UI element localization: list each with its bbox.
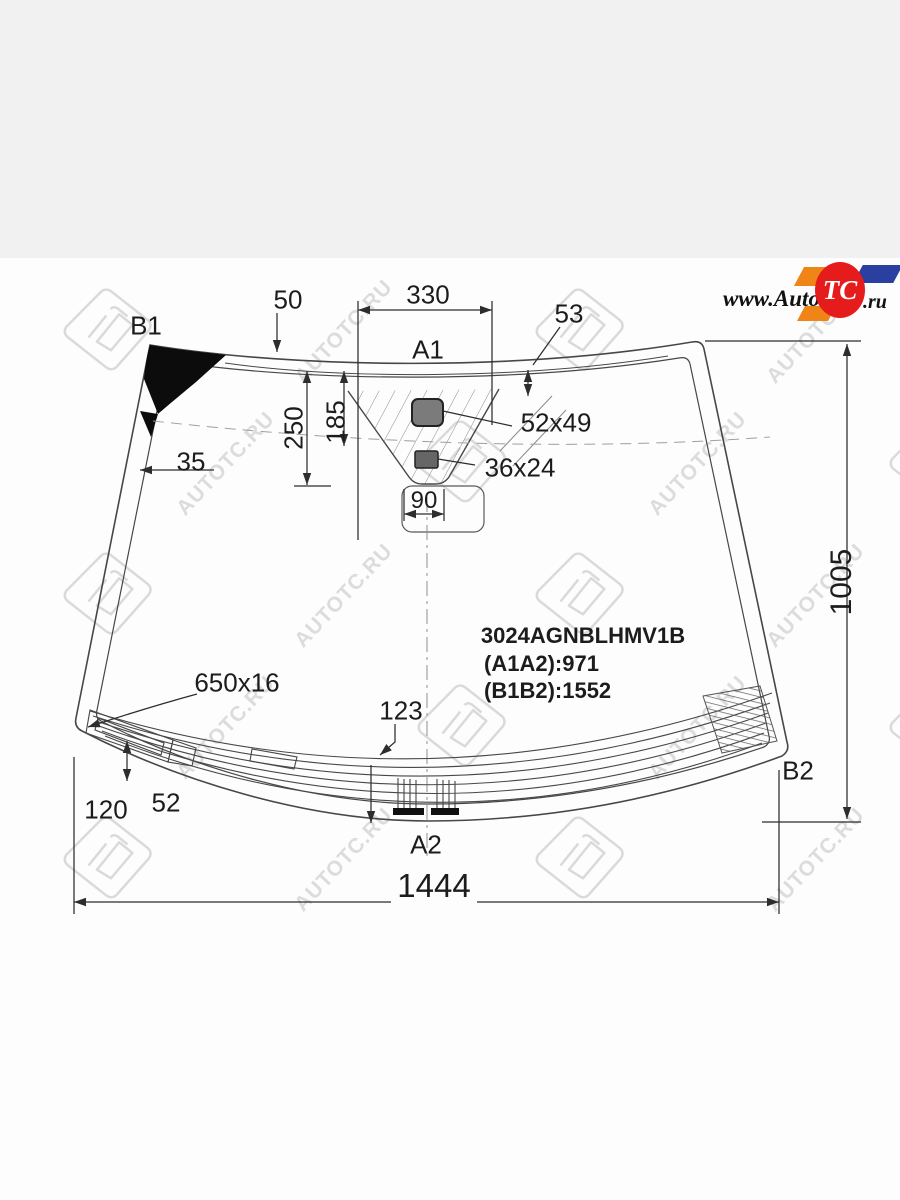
dim-b1b2: (B1B2):1552 [484, 678, 611, 704]
logo-tc-text: TC [823, 275, 858, 306]
sensor-large [412, 399, 443, 426]
dim-sensor-small: 36x24 [485, 453, 556, 484]
heater-terminal-left [393, 808, 424, 815]
windshield-diagram [0, 0, 900, 1200]
dim-123: 123 [379, 696, 422, 727]
dim-1444: 1444 [397, 867, 470, 905]
dim-heater: 650x16 [194, 668, 279, 699]
dim-sensor-large: 52x49 [521, 408, 592, 439]
part-number: 3024AGNBLHMV1B [481, 623, 685, 649]
screenshot-root: AUTOTC.RUAUTOTC.RUAUTOTC.RUAUTOTC.RUAUTO… [0, 0, 900, 1200]
dim-185: 185 [321, 400, 352, 443]
dim-250: 250 [279, 406, 310, 449]
logo-red-circle: TC [815, 262, 865, 318]
dim-1005: 1005 [825, 549, 859, 616]
dim-330: 330 [406, 280, 449, 311]
label-a1: A1 [412, 335, 444, 366]
dim-35: 35 [177, 447, 206, 478]
dim-120: 120 [84, 795, 127, 826]
dim-a1a2: (A1A2):971 [484, 651, 599, 677]
label-b2: B2 [782, 756, 814, 787]
dim-50: 50 [274, 285, 303, 316]
logo-text-left: www.Auto [723, 286, 820, 312]
dim-53: 53 [555, 299, 584, 330]
dim-90: 90 [411, 487, 438, 515]
black-corner-band [140, 345, 226, 437]
label-a2: A2 [410, 830, 442, 861]
logo-text-right: .ru [863, 291, 887, 314]
site-logo[interactable]: www.Auto TC .ru [715, 255, 900, 335]
sensor-small [415, 451, 438, 468]
label-b1: B1 [130, 311, 162, 342]
heater-terminal-right [431, 808, 459, 815]
dim-52: 52 [152, 788, 181, 819]
